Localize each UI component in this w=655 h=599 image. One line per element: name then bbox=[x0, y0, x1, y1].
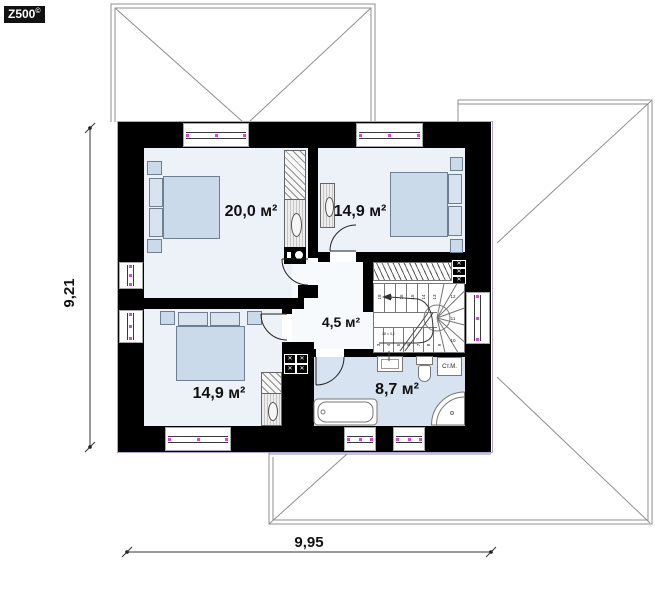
z500-logo-mark: © bbox=[35, 8, 40, 15]
z500-logo-text: Z500 bbox=[8, 7, 35, 21]
stair-number: 11 bbox=[451, 316, 456, 321]
area-label-bedroom-top-left: 20,0 м² bbox=[225, 203, 278, 221]
stair-number: 15 bbox=[410, 294, 415, 300]
stair-number: 13 bbox=[432, 294, 437, 300]
stair-number: 16 bbox=[399, 294, 404, 300]
doors bbox=[261, 225, 356, 385]
stair-number: 14 bbox=[421, 294, 426, 300]
area-label-bathroom: 8,7 м² bbox=[375, 381, 419, 399]
area-label-bedroom-bottom-left: 14,9 м² bbox=[193, 385, 246, 403]
stair-number: 10 bbox=[450, 338, 456, 343]
door-arc-bedroom-bottom-left bbox=[261, 314, 287, 340]
door-arc-bathroom bbox=[316, 357, 344, 385]
area-label-bedroom-top-right: 14,9 м² bbox=[334, 203, 387, 221]
stairs-doors-layer: 18 17 16 15 14 13 12 11 10 3 4 5 6 7 8 9… bbox=[0, 0, 655, 599]
area-label-hall: 4,5 м² bbox=[322, 314, 360, 330]
door-arc-bedroom-top-right bbox=[330, 225, 356, 251]
stair-number: 17 bbox=[388, 294, 393, 300]
floor-plan-canvas: 9,21 9,95 bbox=[0, 0, 655, 599]
door-arc-bedroom-top-left bbox=[282, 259, 308, 285]
z500-logo: Z500© bbox=[4, 6, 45, 23]
stair-note: 18 × 3,2 bbox=[382, 332, 395, 336]
stair-number: 12 bbox=[450, 294, 456, 299]
stair-number: 18 bbox=[377, 294, 382, 300]
